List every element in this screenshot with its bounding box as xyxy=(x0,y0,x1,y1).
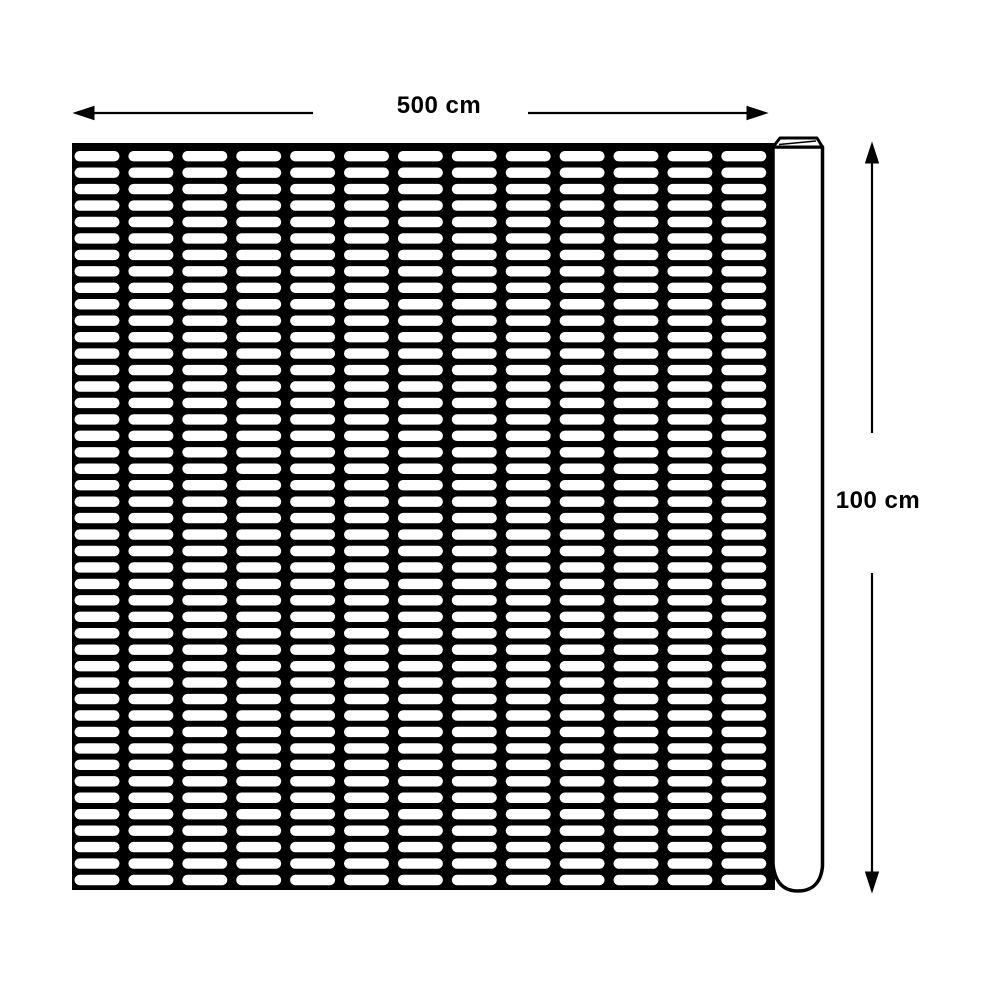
mesh-slot xyxy=(182,266,227,276)
mesh-slot xyxy=(182,184,227,194)
mesh-slot xyxy=(182,365,227,375)
mesh-slot xyxy=(128,283,173,293)
mesh-slot xyxy=(452,217,497,227)
mesh-slot xyxy=(182,809,227,819)
mesh-slot xyxy=(614,151,659,161)
mesh-slot xyxy=(398,167,443,177)
mesh-slot xyxy=(290,167,335,177)
mesh-slot xyxy=(344,628,389,638)
mesh-slot xyxy=(182,398,227,408)
mesh-slot xyxy=(506,628,551,638)
mesh-slot xyxy=(398,414,443,424)
mesh-slot xyxy=(506,233,551,243)
mesh-slot xyxy=(290,793,335,803)
mesh-slot xyxy=(236,875,281,885)
mesh-slot xyxy=(614,595,659,605)
mesh-slot xyxy=(614,217,659,227)
mesh-slot xyxy=(236,398,281,408)
mesh-slot xyxy=(344,694,389,704)
mesh-slot xyxy=(614,365,659,375)
mesh-slot xyxy=(560,464,605,474)
mesh-slot xyxy=(128,464,173,474)
mesh-slot xyxy=(452,266,497,276)
mesh-slot xyxy=(721,496,766,506)
mesh-slot xyxy=(667,480,712,490)
mesh-slot xyxy=(721,562,766,572)
mesh-slot xyxy=(236,776,281,786)
mesh-slot xyxy=(721,595,766,605)
mesh-slot xyxy=(721,529,766,539)
mesh-slot xyxy=(344,825,389,835)
mesh-slot xyxy=(290,513,335,523)
mesh-slot xyxy=(560,760,605,770)
mesh-slot xyxy=(560,743,605,753)
mesh-slot xyxy=(452,694,497,704)
mesh-slot xyxy=(290,151,335,161)
mesh-slot xyxy=(236,825,281,835)
mesh-slot xyxy=(182,677,227,687)
mesh-slot xyxy=(667,595,712,605)
mesh-slot xyxy=(290,299,335,309)
mesh-slot xyxy=(560,809,605,819)
mesh-slot xyxy=(236,233,281,243)
mesh-slot xyxy=(344,776,389,786)
mesh-slot xyxy=(344,793,389,803)
mesh-slot xyxy=(75,710,120,720)
mesh-slot xyxy=(398,776,443,786)
mesh-slot xyxy=(506,661,551,671)
mesh-slot xyxy=(560,858,605,868)
mesh-slot xyxy=(344,710,389,720)
mesh-slot xyxy=(614,661,659,671)
mesh-slot xyxy=(506,595,551,605)
mesh-slot xyxy=(614,546,659,556)
mesh-slot xyxy=(667,825,712,835)
mesh-slot xyxy=(667,694,712,704)
mesh-slot xyxy=(560,233,605,243)
mesh-slot xyxy=(667,710,712,720)
mesh-slot xyxy=(452,842,497,852)
mesh-slot xyxy=(667,398,712,408)
mesh-slot xyxy=(182,167,227,177)
mesh-slot xyxy=(506,299,551,309)
mesh-slot xyxy=(290,727,335,737)
mesh-slot xyxy=(452,760,497,770)
mesh-slot xyxy=(667,431,712,441)
mesh-slot xyxy=(75,875,120,885)
mesh-slot xyxy=(560,612,605,622)
mesh-slot xyxy=(344,217,389,227)
arrow-right-icon xyxy=(747,107,767,120)
mesh-slot xyxy=(667,760,712,770)
mesh-slot xyxy=(452,825,497,835)
mesh-slot xyxy=(506,250,551,260)
mesh-slot xyxy=(667,645,712,655)
mesh-slot xyxy=(182,743,227,753)
mesh-slot xyxy=(560,562,605,572)
mesh-slot xyxy=(344,727,389,737)
mesh-slot xyxy=(452,645,497,655)
mesh-slot xyxy=(344,398,389,408)
mesh-slot xyxy=(75,612,120,622)
mesh-slot xyxy=(506,464,551,474)
mesh-slot xyxy=(721,842,766,852)
mesh-slot xyxy=(344,266,389,276)
mesh-slot xyxy=(398,250,443,260)
mesh-slot xyxy=(75,743,120,753)
mesh-slot xyxy=(290,250,335,260)
mesh-slot xyxy=(236,464,281,474)
mesh-slot xyxy=(506,283,551,293)
mesh-slot xyxy=(452,793,497,803)
mesh-slot xyxy=(128,447,173,457)
mesh-slot xyxy=(182,283,227,293)
arrow-up-icon xyxy=(866,143,879,163)
mesh-slot xyxy=(506,167,551,177)
mesh-slot xyxy=(452,579,497,589)
mesh-slot xyxy=(452,595,497,605)
mesh-slot xyxy=(75,200,120,210)
mesh-slot xyxy=(667,793,712,803)
mesh-slot xyxy=(452,661,497,671)
mesh-slot xyxy=(667,496,712,506)
mesh-slot xyxy=(344,562,389,572)
mesh-slot xyxy=(182,645,227,655)
mesh-slot xyxy=(452,365,497,375)
mesh-slot xyxy=(506,332,551,342)
mesh-slot xyxy=(452,447,497,457)
mesh-slot xyxy=(398,283,443,293)
mesh-slot xyxy=(721,348,766,358)
mesh-slot xyxy=(506,694,551,704)
mesh-slot xyxy=(290,447,335,457)
mesh-slot xyxy=(182,151,227,161)
mesh-slot xyxy=(560,217,605,227)
mesh-slot xyxy=(667,677,712,687)
mesh-slot xyxy=(614,562,659,572)
mesh-slot xyxy=(560,447,605,457)
mesh-slot xyxy=(506,612,551,622)
mesh-slot xyxy=(290,200,335,210)
mesh-slot xyxy=(614,233,659,243)
mesh-slot xyxy=(236,217,281,227)
mesh-slot xyxy=(290,546,335,556)
mesh-slot xyxy=(506,447,551,457)
mesh-slot xyxy=(506,529,551,539)
mesh-slot xyxy=(452,776,497,786)
mesh-slot xyxy=(398,727,443,737)
mesh-slot xyxy=(128,151,173,161)
mesh-slot xyxy=(721,414,766,424)
mesh-slot xyxy=(560,200,605,210)
height-dimension-label: 100 cm xyxy=(798,487,958,515)
mesh-slot xyxy=(452,464,497,474)
mesh-slot xyxy=(75,842,120,852)
mesh-slot xyxy=(398,316,443,326)
mesh-slot xyxy=(560,283,605,293)
mesh-slot xyxy=(75,562,120,572)
mesh-slot xyxy=(614,793,659,803)
mesh-slot xyxy=(614,645,659,655)
mesh-slot xyxy=(614,200,659,210)
mesh-slot xyxy=(128,529,173,539)
mesh-slot xyxy=(667,283,712,293)
mesh-slot xyxy=(721,612,766,622)
mesh-slot xyxy=(560,431,605,441)
mesh-slot xyxy=(506,217,551,227)
mesh-slot xyxy=(75,694,120,704)
mesh-slot xyxy=(236,447,281,457)
mesh-slot xyxy=(182,546,227,556)
mesh-slot xyxy=(721,233,766,243)
mesh-slot xyxy=(398,513,443,523)
mesh-slot xyxy=(667,809,712,819)
mesh-slot xyxy=(182,710,227,720)
mesh-slot xyxy=(667,200,712,210)
mesh-slot xyxy=(128,562,173,572)
mesh-slot xyxy=(452,299,497,309)
mesh-slot xyxy=(452,348,497,358)
mesh-slot xyxy=(614,825,659,835)
mesh-slot xyxy=(128,217,173,227)
mesh-slot xyxy=(290,496,335,506)
mesh-slot xyxy=(721,875,766,885)
mesh-slot xyxy=(75,464,120,474)
mesh-slot xyxy=(182,579,227,589)
mesh-slot xyxy=(506,743,551,753)
mesh-slot xyxy=(667,628,712,638)
mesh-slot xyxy=(236,480,281,490)
mesh-slot xyxy=(667,217,712,227)
mesh-slot xyxy=(128,167,173,177)
mesh-slot xyxy=(560,595,605,605)
mesh-slot xyxy=(667,661,712,671)
mesh-slot xyxy=(667,612,712,622)
mesh-slot xyxy=(614,710,659,720)
arrow-down-icon xyxy=(866,872,879,892)
mesh-slot xyxy=(560,250,605,260)
mesh-slot xyxy=(344,431,389,441)
mesh-slot xyxy=(344,858,389,868)
mesh-slot xyxy=(290,743,335,753)
mesh-slot xyxy=(614,513,659,523)
mesh-slot xyxy=(236,381,281,391)
mesh-slot xyxy=(75,167,120,177)
mesh-slot xyxy=(290,612,335,622)
mesh-slot xyxy=(560,677,605,687)
mesh-slot xyxy=(236,529,281,539)
mesh-slot xyxy=(506,579,551,589)
mesh-slot xyxy=(667,776,712,786)
mesh-slot xyxy=(614,628,659,638)
mesh-slot xyxy=(398,529,443,539)
mesh-slot xyxy=(344,299,389,309)
mesh-slot xyxy=(506,266,551,276)
mesh-slot xyxy=(236,250,281,260)
mesh-slot xyxy=(236,365,281,375)
mesh-slot xyxy=(667,579,712,589)
mesh-slot xyxy=(614,332,659,342)
mesh-slot xyxy=(560,348,605,358)
mesh-slot xyxy=(290,842,335,852)
mesh-slot xyxy=(614,760,659,770)
mesh-slot xyxy=(614,677,659,687)
mesh-slot xyxy=(290,464,335,474)
mesh-slot xyxy=(128,677,173,687)
mesh-slot xyxy=(398,365,443,375)
mesh-slot xyxy=(290,809,335,819)
mesh-slot xyxy=(236,727,281,737)
mesh-slot xyxy=(236,316,281,326)
mesh-slot xyxy=(236,760,281,770)
mesh-slot xyxy=(398,760,443,770)
mesh-slot xyxy=(128,398,173,408)
mesh-slot xyxy=(344,842,389,852)
mesh-slot xyxy=(667,858,712,868)
mesh-slot xyxy=(398,710,443,720)
mesh-slot xyxy=(290,332,335,342)
mesh-slot xyxy=(452,677,497,687)
mesh-slot xyxy=(614,480,659,490)
mesh-slot xyxy=(506,858,551,868)
mesh-slot xyxy=(128,414,173,424)
mesh-slot xyxy=(452,480,497,490)
mesh-slot xyxy=(236,809,281,819)
mesh-slot xyxy=(236,266,281,276)
mesh-slot xyxy=(667,727,712,737)
mesh-slot xyxy=(236,661,281,671)
mesh-slot xyxy=(560,316,605,326)
mesh-slot xyxy=(290,381,335,391)
mesh-slot xyxy=(344,348,389,358)
mesh-slot xyxy=(236,694,281,704)
mesh-slot xyxy=(398,546,443,556)
mesh-slot xyxy=(182,661,227,671)
mesh-slot xyxy=(452,529,497,539)
mesh-slot xyxy=(128,348,173,358)
mesh-slot xyxy=(614,579,659,589)
mesh-slot xyxy=(614,398,659,408)
mesh-slot xyxy=(398,398,443,408)
mesh-slot xyxy=(128,793,173,803)
mesh-slot xyxy=(236,595,281,605)
mesh-slot xyxy=(667,562,712,572)
mesh-slot xyxy=(506,645,551,655)
mesh-slot xyxy=(667,348,712,358)
mesh-slot xyxy=(452,710,497,720)
mesh-slot xyxy=(344,677,389,687)
mesh-slot xyxy=(128,858,173,868)
mesh-slot xyxy=(452,546,497,556)
mesh-slot xyxy=(128,546,173,556)
mesh-slot xyxy=(667,184,712,194)
mesh-slot xyxy=(344,414,389,424)
mesh-slot xyxy=(398,200,443,210)
mesh-slot xyxy=(344,529,389,539)
mesh-slot xyxy=(344,513,389,523)
mesh-slot xyxy=(236,677,281,687)
mesh-slot xyxy=(452,316,497,326)
mesh-slot xyxy=(667,546,712,556)
mesh-slot xyxy=(344,283,389,293)
mesh-slot xyxy=(560,628,605,638)
mesh-slot xyxy=(506,825,551,835)
mesh-slot xyxy=(128,250,173,260)
mesh-slot xyxy=(614,431,659,441)
mesh-slot xyxy=(344,233,389,243)
mesh-slot xyxy=(182,348,227,358)
mesh-slot xyxy=(614,250,659,260)
mesh-slot xyxy=(614,727,659,737)
mesh-slot xyxy=(290,760,335,770)
mesh-slot xyxy=(506,875,551,885)
mesh-slot xyxy=(344,250,389,260)
mesh-slot xyxy=(721,299,766,309)
mesh-slot xyxy=(560,579,605,589)
mesh-slot xyxy=(75,266,120,276)
mesh-slot xyxy=(506,760,551,770)
mesh-slot xyxy=(506,348,551,358)
mesh-slot xyxy=(128,496,173,506)
mesh-slot xyxy=(560,825,605,835)
mesh-slot xyxy=(614,858,659,868)
mesh-slot xyxy=(667,875,712,885)
mesh-slot xyxy=(182,875,227,885)
mesh-slot xyxy=(236,151,281,161)
mesh-slot xyxy=(506,414,551,424)
mesh-slot xyxy=(721,546,766,556)
mesh-slot xyxy=(667,250,712,260)
mesh-slot xyxy=(290,529,335,539)
mesh-slot xyxy=(344,595,389,605)
mesh-slot xyxy=(721,743,766,753)
mesh-slot xyxy=(452,431,497,441)
mesh-slot xyxy=(398,694,443,704)
mesh-slot xyxy=(75,398,120,408)
mesh-slot xyxy=(128,694,173,704)
mesh-slot xyxy=(398,579,443,589)
mesh-slot xyxy=(721,431,766,441)
mesh-slot xyxy=(560,645,605,655)
mesh-slot xyxy=(560,546,605,556)
mesh-slot xyxy=(398,233,443,243)
mesh-slot xyxy=(182,562,227,572)
mesh-slot xyxy=(182,250,227,260)
mesh-slot xyxy=(182,628,227,638)
mesh-slot xyxy=(182,793,227,803)
mesh-slot xyxy=(236,793,281,803)
mesh-slot xyxy=(560,727,605,737)
mesh-slot xyxy=(398,151,443,161)
mesh-slot xyxy=(236,562,281,572)
mesh-slot xyxy=(128,645,173,655)
mesh-slot xyxy=(560,661,605,671)
mesh-slot xyxy=(398,645,443,655)
mesh-slot xyxy=(75,299,120,309)
mesh-slot xyxy=(721,677,766,687)
mesh-slot xyxy=(721,776,766,786)
mesh-slot xyxy=(75,233,120,243)
mesh-slot xyxy=(560,842,605,852)
mesh-slot xyxy=(667,151,712,161)
mesh-slot xyxy=(721,727,766,737)
mesh-slot xyxy=(506,365,551,375)
mesh-slot xyxy=(614,529,659,539)
mesh-slot xyxy=(560,513,605,523)
mesh-slot xyxy=(560,381,605,391)
mesh-slot xyxy=(75,776,120,786)
mesh-slot xyxy=(721,266,766,276)
